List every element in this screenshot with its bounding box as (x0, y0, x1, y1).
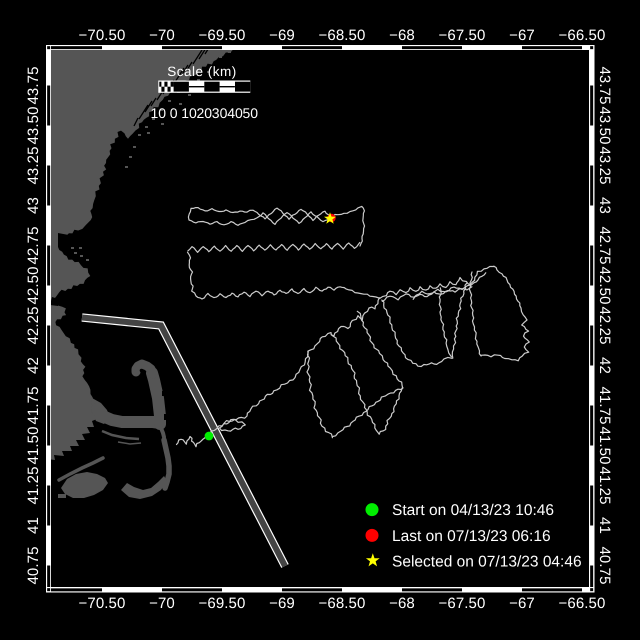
svg-text:41: 41 (25, 517, 42, 534)
svg-text:42.25: 42.25 (596, 306, 613, 344)
svg-text:41.50: 41.50 (596, 426, 613, 464)
svg-text:43.50: 43.50 (596, 106, 613, 144)
svg-text:−68.50: −68.50 (319, 27, 366, 44)
svg-text:42: 42 (25, 357, 42, 374)
svg-text:43: 43 (25, 197, 42, 214)
svg-text:−70: −70 (149, 595, 175, 612)
svg-text:−70.50: −70.50 (79, 27, 126, 44)
svg-text:41.50: 41.50 (25, 426, 42, 464)
svg-text:50: 50 (243, 105, 259, 121)
svg-text:20: 20 (197, 105, 213, 121)
svg-text:43.50: 43.50 (25, 106, 42, 144)
svg-text:Scale (km): Scale (km) (167, 64, 237, 79)
svg-text:−66.50: −66.50 (559, 595, 606, 612)
svg-text:40.75: 40.75 (25, 546, 42, 584)
svg-text:−69.50: −69.50 (199, 595, 246, 612)
svg-text:−69.50: −69.50 (199, 27, 246, 44)
svg-text:42.50: 42.50 (596, 266, 613, 304)
svg-text:Selected on 07/13/23 04:46: Selected on 07/13/23 04:46 (392, 554, 582, 571)
svg-text:−70.50: −70.50 (79, 595, 126, 612)
svg-text:Last on 07/13/23 06:16: Last on 07/13/23 06:16 (392, 528, 551, 545)
svg-text:−70: −70 (149, 27, 175, 44)
svg-text:−69: −69 (269, 595, 295, 612)
svg-text:−69: −69 (269, 27, 295, 44)
svg-text:0: 0 (170, 105, 178, 121)
svg-text:43.25: 43.25 (596, 146, 613, 184)
svg-text:−67.50: −67.50 (439, 595, 486, 612)
svg-text:42.50: 42.50 (25, 266, 42, 304)
svg-text:10: 10 (151, 105, 167, 121)
svg-text:−67: −67 (509, 595, 535, 612)
svg-text:−67: −67 (509, 27, 535, 44)
svg-text:43: 43 (596, 197, 613, 214)
svg-text:42.25: 42.25 (25, 306, 42, 344)
svg-text:41: 41 (596, 517, 613, 534)
svg-text:−68.50: −68.50 (319, 595, 366, 612)
svg-text:42.75: 42.75 (596, 226, 613, 264)
svg-text:41.25: 41.25 (596, 466, 613, 504)
svg-text:43.25: 43.25 (25, 146, 42, 184)
svg-text:40.75: 40.75 (596, 546, 613, 584)
svg-text:10: 10 (181, 105, 197, 121)
svg-text:42.75: 42.75 (25, 226, 42, 264)
svg-text:−67.50: −67.50 (439, 27, 486, 44)
svg-text:43.75: 43.75 (596, 66, 613, 104)
svg-text:30: 30 (212, 105, 228, 121)
svg-text:40: 40 (227, 105, 243, 121)
svg-text:Start on 04/13/23 10:46: Start on 04/13/23 10:46 (392, 502, 554, 519)
svg-text:41.75: 41.75 (25, 386, 42, 424)
svg-text:−68: −68 (389, 595, 415, 612)
svg-text:43.75: 43.75 (25, 66, 42, 104)
svg-text:−68: −68 (389, 27, 415, 44)
svg-text:41.75: 41.75 (596, 386, 613, 424)
svg-text:41.25: 41.25 (25, 466, 42, 504)
svg-text:−66.50: −66.50 (559, 27, 606, 44)
svg-text:42: 42 (596, 357, 613, 374)
